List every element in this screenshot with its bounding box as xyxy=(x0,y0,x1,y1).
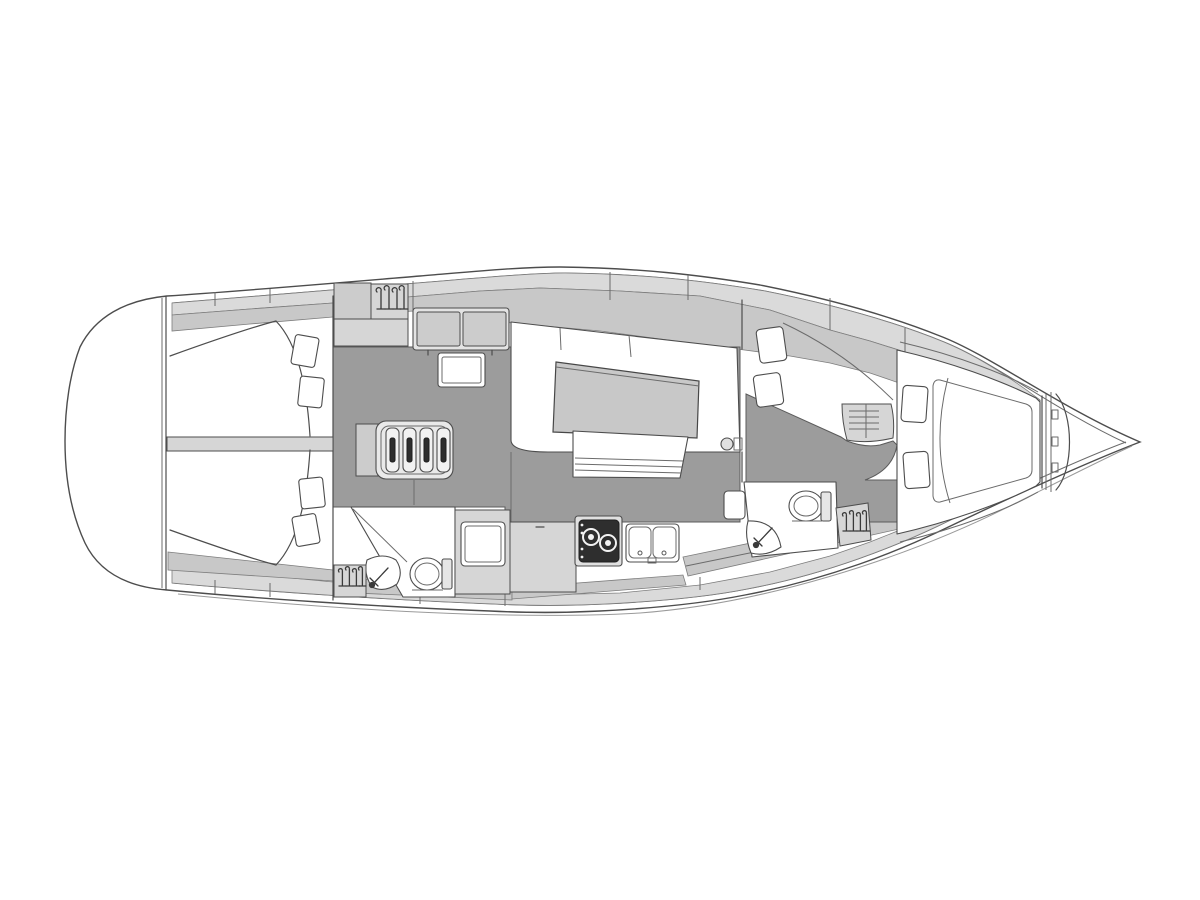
locker-panel xyxy=(334,283,371,319)
saloon-bench xyxy=(573,431,688,478)
fridge-door xyxy=(724,491,745,519)
steps-housing xyxy=(356,424,378,476)
nav-seat-cushion xyxy=(417,312,460,346)
yacht-floorplan xyxy=(0,0,1200,900)
toilet-icon xyxy=(410,558,452,590)
galley-counter xyxy=(506,522,576,592)
yacht-floorplan-canvas xyxy=(0,0,1200,900)
aft-cabin-divider xyxy=(167,437,333,451)
mast-post-icon xyxy=(721,438,733,450)
nav-seat-cushion xyxy=(463,312,506,346)
toilet-icon xyxy=(789,491,831,521)
chart-table xyxy=(438,353,485,387)
locker-cabinet xyxy=(334,319,408,346)
shower-door xyxy=(461,522,505,566)
